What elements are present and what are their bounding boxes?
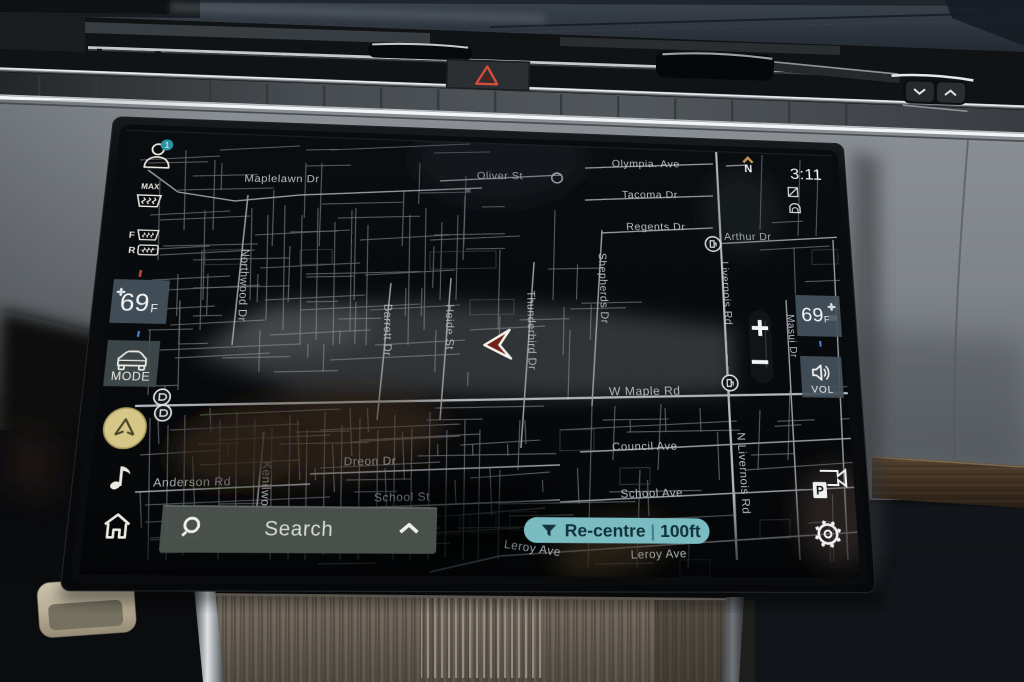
svg-text:3:11: 3:11 <box>790 165 823 183</box>
svg-text:N: N <box>744 164 753 175</box>
svg-text:Olympia. Ave: Olympia. Ave <box>612 158 681 170</box>
svg-text:Tacoma Dr: Tacoma Dr <box>622 189 678 201</box>
svg-text:Regents Dr: Regents Dr <box>626 221 686 233</box>
svg-text:69: 69 <box>801 304 825 326</box>
svg-text:Council Ave: Council Ave <box>612 440 678 454</box>
svg-text:Search: Search <box>264 517 334 540</box>
svg-text:MODE: MODE <box>110 370 150 383</box>
svg-text:Maplelawn Dr: Maplelawn Dr <box>244 173 320 185</box>
svg-text:VOL: VOL <box>811 384 834 396</box>
svg-text:Re-centre | 100ft: Re-centre | 100ft <box>565 521 702 542</box>
svg-text:P: P <box>816 485 825 498</box>
svg-text:School Ave: School Ave <box>620 487 683 501</box>
svg-text:MAX: MAX <box>141 182 161 191</box>
